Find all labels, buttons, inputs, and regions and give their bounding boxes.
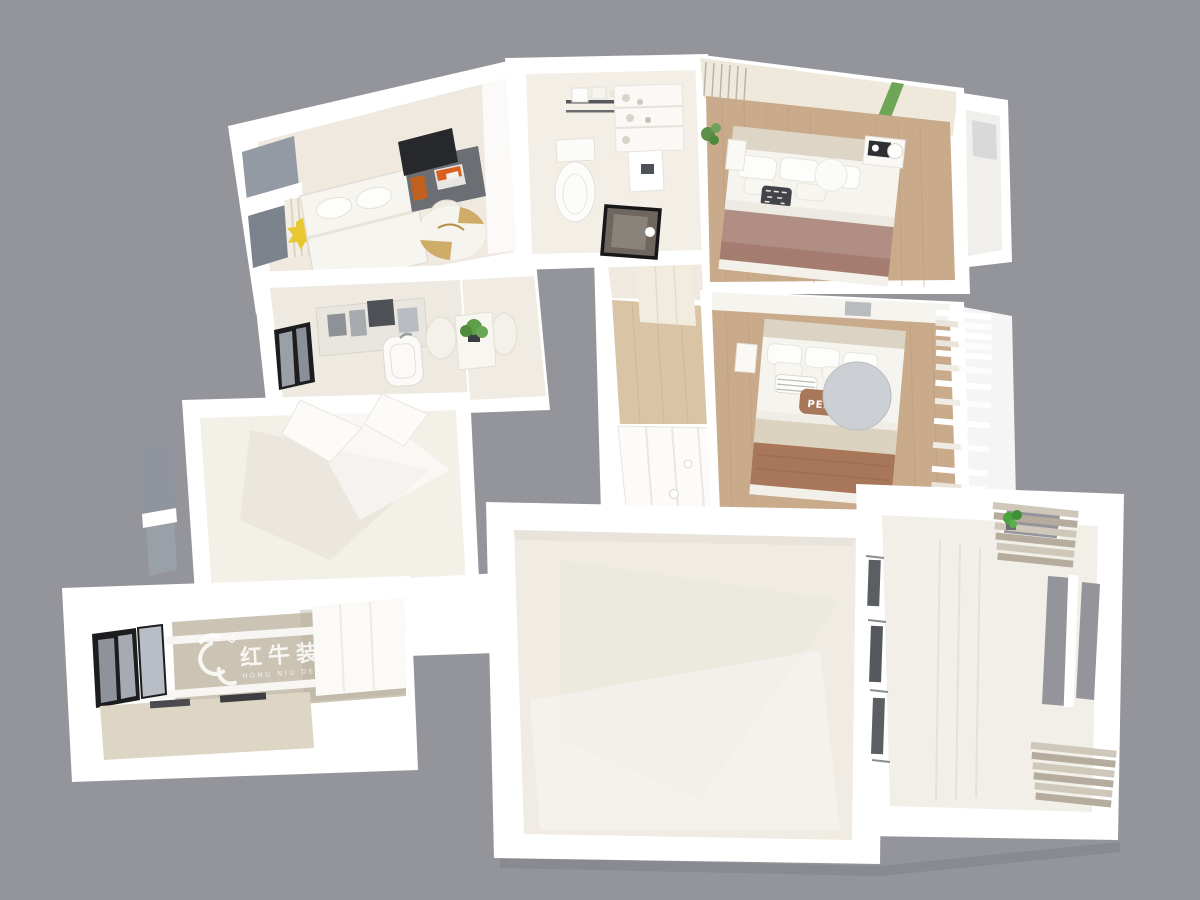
- kitchen-sink: [382, 333, 424, 388]
- towel: [592, 87, 606, 99]
- ceiling-lamp: [815, 159, 847, 191]
- round-rug: [418, 206, 486, 260]
- nightstand: [725, 139, 746, 171]
- toilet: [555, 138, 595, 222]
- bed-pillow: [805, 347, 841, 370]
- wardrobe-knob: [684, 460, 692, 468]
- door-handle: [641, 164, 654, 174]
- floor-plan-render: 红牛装饰 HONG NIU DECORATION: [0, 0, 1200, 900]
- render-canvas: 红牛装饰 HONG NIU DECORATION: [0, 0, 1200, 900]
- second-bay-window: [958, 306, 1016, 506]
- entry-cabinets: [312, 598, 406, 696]
- entry-glass-door: [138, 625, 166, 698]
- master-bay-window: [956, 92, 1012, 268]
- bathroom: [505, 54, 716, 270]
- wardrobe: [618, 426, 722, 508]
- wardrobe-knob: [670, 490, 679, 499]
- living-room: [486, 502, 884, 864]
- shower-door: [602, 206, 660, 258]
- hanging-lamp: [823, 362, 891, 430]
- range-hood: [367, 299, 395, 327]
- kitchen-stove: [397, 307, 419, 333]
- nightstand: [863, 136, 906, 168]
- vanity-door: [628, 150, 664, 192]
- entry-hall: 红牛装饰 HONG NIU DECORATION: [62, 576, 418, 782]
- towel: [572, 88, 588, 102]
- kitchen-window: [274, 322, 315, 390]
- kitchen-appliance: [349, 309, 367, 336]
- ceiling-light: [845, 301, 872, 316]
- dining-chair: [426, 317, 456, 359]
- entry-window: [92, 625, 166, 708]
- balcony: [856, 484, 1124, 840]
- door-knob: [645, 227, 655, 237]
- vanity-shelf: [614, 84, 684, 152]
- hall-closet: [636, 262, 696, 326]
- kitchen-appliance: [327, 313, 347, 336]
- bed-pillow: [779, 157, 819, 183]
- nightstand: [735, 343, 757, 373]
